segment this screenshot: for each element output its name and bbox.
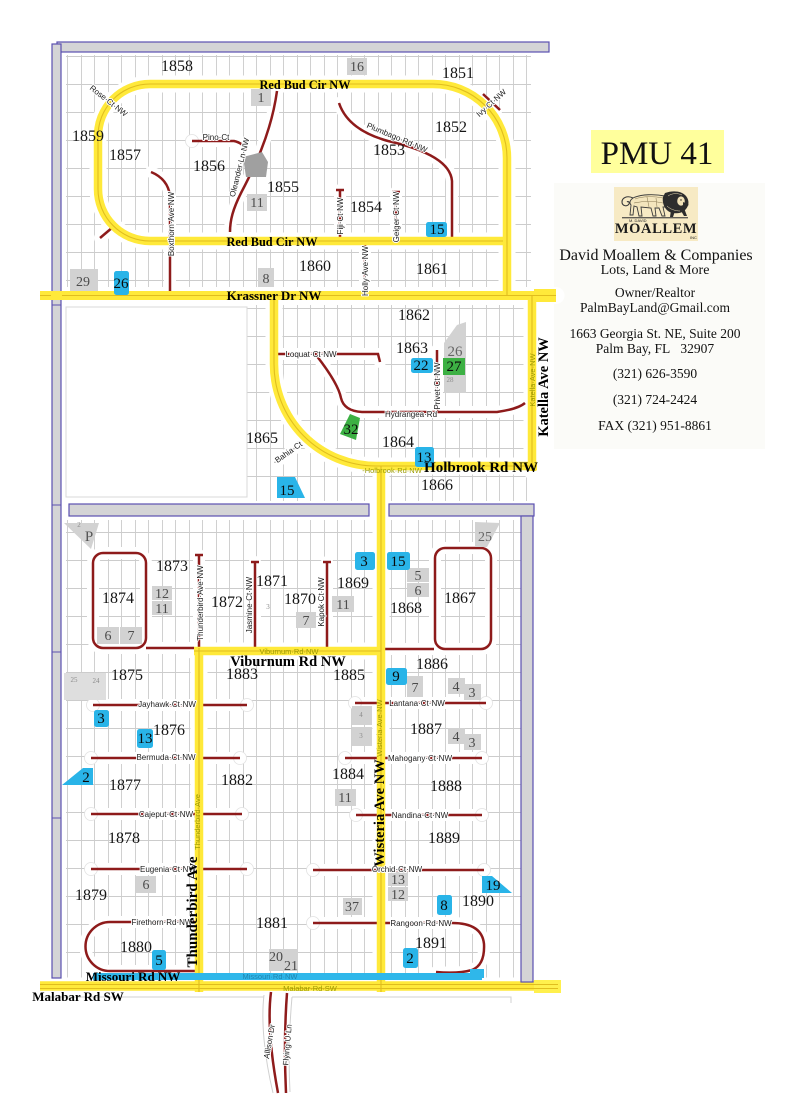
svg-text:1890: 1890 [462,893,494,910]
svg-text:1863: 1863 [396,340,428,357]
svg-text:22: 22 [414,358,429,374]
svg-text:INC: INC [690,235,697,240]
svg-text:4: 4 [453,730,460,745]
svg-text:Kapok·Ct·NW: Kapok·Ct·NW [317,577,326,627]
svg-text:6: 6 [143,878,150,893]
svg-text:1878: 1878 [108,830,140,847]
svg-text:1875: 1875 [111,667,143,684]
svg-text:Pino·Ct: Pino·Ct [203,133,230,142]
svg-text:Privet·Ct·NW: Privet·Ct·NW [433,362,442,410]
svg-text:Red Bud Cir NW: Red Bud Cir NW [227,235,319,249]
svg-text:1: 1 [258,91,265,106]
svg-text:Katella Ave NW: Katella Ave NW [536,337,552,437]
svg-text:29: 29 [76,275,90,290]
svg-text:11: 11 [250,196,263,211]
svg-text:8: 8 [440,898,448,914]
svg-text:-Holbrook·Rd·NW: -Holbrook·Rd·NW [362,466,423,475]
svg-text:37: 37 [345,900,359,915]
svg-text:PalmBayLand@Gmail.com: PalmBayLand@Gmail.com [580,300,731,315]
svg-text:Holly·Ave·NW: Holly·Ave·NW [361,246,370,297]
svg-text:1882: 1882 [221,772,253,789]
svg-text:1887: 1887 [410,721,442,738]
svg-text:1858: 1858 [161,58,193,75]
svg-text:David Moallem & Companies: David Moallem & Companies [559,247,752,264]
svg-text:3: 3 [469,736,476,751]
svg-text:1852: 1852 [435,119,467,136]
svg-text:PMU 41: PMU 41 [601,136,714,172]
svg-text:1853: 1853 [373,142,405,159]
svg-text:1867: 1867 [444,590,476,607]
svg-text:Lots, Land & More: Lots, Land & More [601,263,710,278]
svg-text:1864: 1864 [382,434,414,451]
svg-text:9: 9 [392,669,400,685]
svg-text:3: 3 [469,686,476,701]
svg-text:1663 Georgia St. NE, Suite 200: 1663 Georgia St. NE, Suite 200 [569,326,740,341]
svg-text:1869: 1869 [337,575,369,592]
svg-text:1880: 1880 [120,939,152,956]
svg-text:1876: 1876 [153,722,185,739]
svg-text:1861: 1861 [416,261,448,278]
svg-text:1870: 1870 [284,591,316,608]
svg-text:26: 26 [448,344,464,360]
svg-text:3: 3 [97,711,105,727]
svg-text:1873: 1873 [156,558,188,575]
svg-text:1888: 1888 [430,778,462,795]
svg-text:11: 11 [336,598,349,613]
svg-text:12: 12 [155,587,169,602]
svg-text:15: 15 [391,554,406,570]
svg-text:5: 5 [415,569,422,584]
svg-text:3: 3 [359,732,363,740]
svg-text:Fiji·Ct·NW: Fiji·Ct·NW [336,197,345,234]
svg-text:Geiger·Ct·NW: Geiger·Ct·NW [392,191,401,242]
svg-text:1881: 1881 [256,915,288,932]
svg-text:Firethorn·Rd·NW: Firethorn·Rd·NW [132,918,193,927]
svg-text:1889: 1889 [428,830,460,847]
svg-text:Wisteria·Ave·NW: Wisteria·Ave·NW [375,698,384,756]
svg-text:1866: 1866 [421,477,453,494]
svg-text:Owner/Realtor: Owner/Realtor [615,285,696,300]
svg-text:Red Bud Cir NW: Red Bud Cir NW [260,78,352,92]
svg-text:Viburnum Rd NW: Viburnum Rd NW [230,654,346,670]
svg-text:Boxthorn·Ave·NW: Boxthorn·Ave·NW [167,191,176,256]
svg-text:Thunderbird·Ave: Thunderbird·Ave [193,794,202,850]
svg-text:32: 32 [344,422,359,438]
svg-text:6: 6 [415,584,422,599]
svg-text:1879: 1879 [75,887,107,904]
svg-text:11: 11 [338,791,351,806]
svg-text:1868: 1868 [390,600,422,617]
svg-text:13: 13 [138,731,153,747]
svg-text:Palm Bay, FL 32907: Palm Bay, FL 32907 [596,341,715,356]
svg-text:Jayhawk·Ct·NW: Jayhawk·Ct·NW [138,700,196,709]
svg-text:1860: 1860 [299,258,331,275]
svg-text:12: 12 [391,888,405,903]
svg-text:25: 25 [71,676,79,684]
svg-text:Rangoon·Rd·NW: Rangoon·Rd·NW [390,919,452,928]
svg-text:27: 27 [447,359,463,375]
svg-text:Bermuda·Ct·NW: Bermuda·Ct·NW [136,753,196,762]
svg-text:Thunderbird·Ave·NW: Thunderbird·Ave·NW [196,565,205,641]
svg-text:1886: 1886 [416,656,448,673]
svg-text:1884: 1884 [332,766,364,783]
svg-text:Nandina·Ct·NW: Nandina·Ct·NW [392,811,449,820]
svg-text:Cajeput·Ct·NW: Cajeput·Ct·NW [139,810,194,819]
svg-text:Malabar·Rd·SW: Malabar·Rd·SW [283,984,338,993]
svg-text:24: 24 [93,677,101,685]
svg-text:5: 5 [155,953,163,969]
svg-text:16: 16 [350,60,364,75]
svg-text:Missouri·Rd·NW: Missouri·Rd·NW [243,972,299,981]
svg-text:2: 2 [406,951,414,967]
svg-text:FAX (321) 951-8861: FAX (321) 951-8861 [598,418,712,433]
svg-text:1856: 1856 [193,158,225,175]
svg-text:Hydrangea·Rd: Hydrangea·Rd [385,410,437,419]
svg-text:Malabar Rd SW: Malabar Rd SW [32,989,124,1004]
svg-text:26: 26 [114,276,130,292]
svg-text:4: 4 [359,711,363,719]
svg-text:Missouri Rd NW: Missouri Rd NW [86,969,181,984]
svg-text:Loquat·Ct·NW: Loquat·Ct·NW [285,350,337,359]
svg-text:15: 15 [280,483,295,499]
svg-text:1857: 1857 [109,147,141,164]
svg-text:MOALLEM: MOALLEM [615,221,697,237]
svg-text:1859: 1859 [72,128,104,145]
svg-text:7: 7 [128,629,135,644]
svg-text:Lantana·Ct·NW: Lantana·Ct·NW [389,699,445,708]
svg-text:28: 28 [447,376,455,384]
svg-text:15: 15 [430,222,445,238]
svg-text:19: 19 [486,878,501,894]
svg-text:1872: 1872 [211,594,243,611]
svg-text:Wisteria Ave NW: Wisteria Ave NW [372,759,388,867]
svg-text:Jasmine·Ct·NW: Jasmine·Ct·NW [245,576,254,633]
svg-text:1862: 1862 [398,307,430,324]
svg-text:(321) 724-2424: (321) 724-2424 [613,392,698,407]
svg-text:1874: 1874 [102,590,134,607]
svg-text:1871: 1871 [256,573,288,590]
svg-text:Holbrook Rd NW: Holbrook Rd NW [424,460,538,476]
svg-text:3: 3 [266,603,270,611]
svg-text:Krassner Dr NW: Krassner Dr NW [227,288,322,303]
svg-text:1855: 1855 [267,179,299,196]
svg-text:13: 13 [391,873,405,888]
svg-text:2: 2 [82,770,90,786]
svg-text:2: 2 [77,521,81,529]
svg-text:3: 3 [360,554,368,570]
svg-text:8: 8 [263,272,270,287]
svg-text:11: 11 [155,602,168,617]
svg-text:1865: 1865 [246,430,278,447]
svg-text:4: 4 [453,680,460,695]
svg-text:6: 6 [105,629,112,644]
svg-text:20: 20 [269,950,283,965]
svg-text:1891: 1891 [415,935,447,952]
svg-text:25: 25 [478,530,492,545]
svg-text:(321) 626-3590: (321) 626-3590 [613,366,698,381]
svg-text:7: 7 [303,614,310,629]
svg-text:Mahogany·Ct·NW: Mahogany·Ct·NW [388,754,452,763]
svg-text:7: 7 [412,681,419,696]
svg-text:P: P [85,529,93,545]
svg-text:1854: 1854 [350,199,382,216]
svg-text:Thunderbird Ave: Thunderbird Ave [185,856,201,967]
svg-text:1877: 1877 [109,777,141,794]
svg-text:1851: 1851 [442,65,474,82]
